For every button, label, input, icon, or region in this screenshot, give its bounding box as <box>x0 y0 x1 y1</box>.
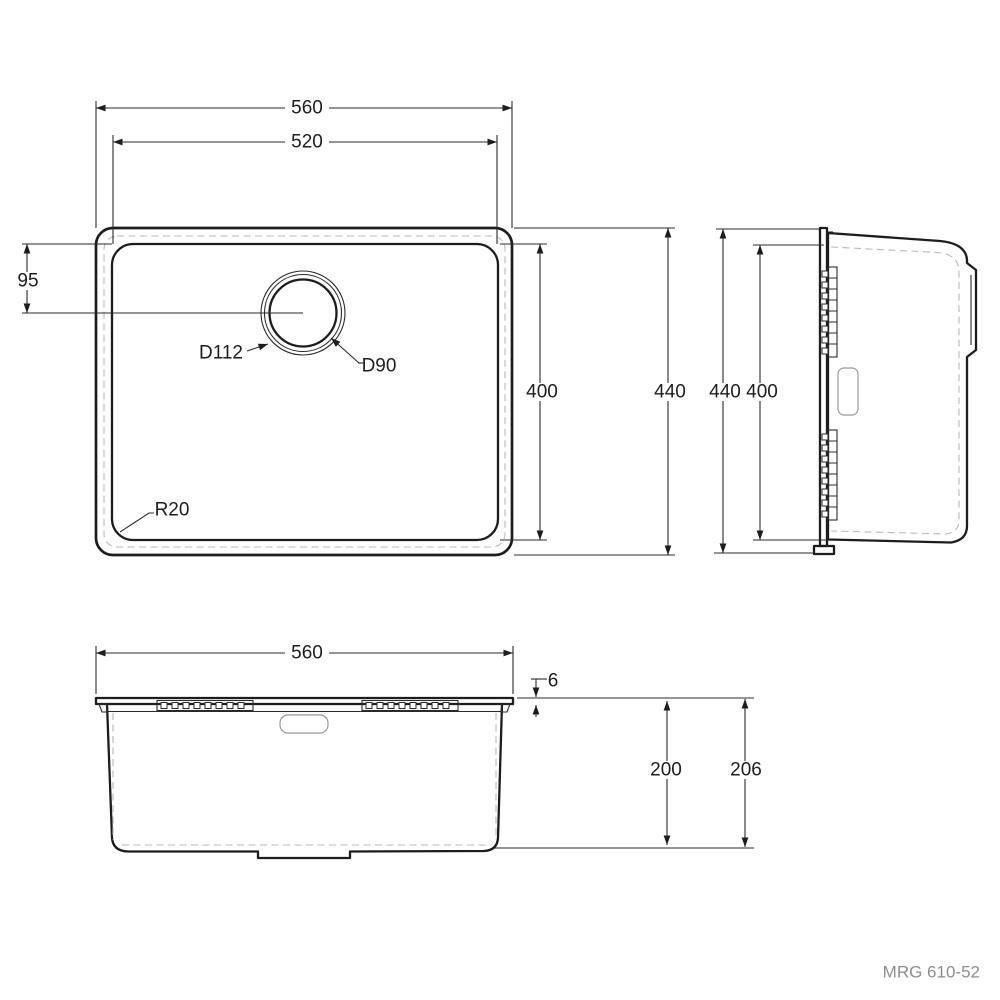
front-bowl-depth-dim-label: 200 <box>650 760 682 781</box>
side-flange-foot <box>814 546 834 554</box>
leader-drain-hole <box>331 338 359 363</box>
plan-drain-offset-dim-label: 95 <box>17 271 38 292</box>
technical-drawing-page: 560 520 95 400 440 D112 D90 R20 4 <box>0 0 1000 1000</box>
plan-outer-length-dim-label: 440 <box>654 382 686 403</box>
model-number: MRG 610-52 <box>883 963 980 982</box>
plan-bowl-outline <box>112 244 498 540</box>
side-mounting-clip-bottom <box>822 430 837 520</box>
front-mounting-clip-left <box>157 701 253 711</box>
front-rim-thickness-dim-label: 6 <box>548 671 559 692</box>
side-view: 440 400 <box>703 228 976 554</box>
side-hidden-bowl-outline <box>831 247 959 534</box>
plan-width-extension-lines <box>96 101 512 244</box>
front-width-dim-label: 560 <box>291 643 323 664</box>
side-body-outline <box>828 233 976 543</box>
sink-technical-drawing: 560 520 95 400 440 D112 D90 R20 4 <box>0 0 1000 1000</box>
front-mounting-clip-right <box>362 701 458 711</box>
drain-hole-diameter-label: D90 <box>362 356 397 377</box>
plan-drain <box>22 271 345 355</box>
side-outer-length-dim-label: 440 <box>709 382 741 403</box>
plan-inner-width-dim-label: 520 <box>291 132 323 153</box>
side-overflow-hole <box>838 368 858 415</box>
plan-view: 560 520 95 400 440 D112 D90 R20 <box>15 98 690 556</box>
leader-drain-flange <box>247 344 268 351</box>
front-overall-depth-dim-label: 206 <box>730 760 762 781</box>
plan-outer-width-dim-label: 560 <box>291 98 323 119</box>
front-view: 560 6 200 206 <box>96 643 768 859</box>
corner-radius-label: R20 <box>155 500 190 521</box>
front-bowl-outline <box>107 704 502 858</box>
leader-corner-radius <box>120 513 154 532</box>
side-mounting-clip-top <box>822 267 837 357</box>
front-hidden-wall-lines <box>113 713 496 840</box>
front-overflow-hole <box>280 715 328 733</box>
plan-inner-length-dim-label: 400 <box>526 382 558 403</box>
drain-flange-diameter-label: D112 <box>199 343 243 364</box>
side-inner-length-dim-label: 400 <box>746 382 778 403</box>
